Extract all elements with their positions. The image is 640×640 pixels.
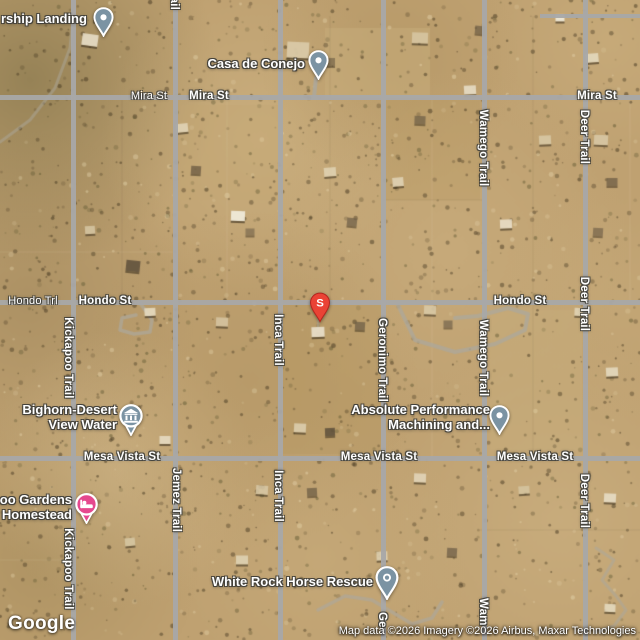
poi-label-white-rock-horse-rescue[interactable]: White Rock Horse Rescue [212, 575, 373, 590]
lodging-pin-icon[interactable] [74, 492, 99, 524]
poi-label-gardens-homestead[interactable]: oo Gardens Homestead [0, 493, 72, 522]
map-attribution[interactable]: Map data ©2026 Imagery ©2026 Airbus, Max… [339, 625, 636, 637]
poi-pin-icon[interactable] [489, 405, 510, 435]
poi-label-line: View Water [22, 418, 117, 433]
street-label-deer-2: Deer Trail [578, 277, 590, 331]
street-label-mira-1: Mira St [131, 90, 167, 102]
poi-pin-icon[interactable] [308, 50, 329, 80]
street-label-inca-2: Inca Trail [272, 470, 284, 522]
street-label-mesa-vista-3: Mesa Vista St [497, 451, 574, 463]
street-label-mira-2: Mira St [189, 90, 229, 102]
street-label-mira-3: Mira St [577, 90, 617, 102]
street-label-inca-1: Inca Trail [272, 314, 284, 366]
street-label-wamego-1: Wamego Trail [477, 110, 489, 187]
street-label-kickapoo-1: Kickapoo Trail [62, 317, 74, 398]
street-label-hondo-trl: Hondo Trl [8, 295, 58, 307]
street-label-deer-1: Deer Trail [578, 110, 590, 164]
street-label-mesa-vista-1: Mesa Vista St [84, 451, 161, 463]
poi-pin-icon[interactable] [93, 7, 114, 37]
poi-label-line: Machining and... [351, 418, 490, 433]
street-label-geronimo-1: Geronimo Trail [376, 318, 388, 402]
poi-label-line: oo Gardens [0, 493, 72, 508]
map-canvas[interactable]: z Trail Mira St Mira St Mira St Wamego T… [0, 0, 640, 640]
street-label-hondo-st-1: Hondo St [79, 295, 132, 307]
museum-pin-icon[interactable] [118, 403, 144, 436]
street-label-deer-3: Deer Trail [578, 474, 590, 528]
poi-label-bighorn-desert-view-water[interactable]: Bighorn-Desert View Water [22, 403, 117, 432]
street-label-wamego-fragment: Wam [477, 598, 489, 626]
poi-label-casa-de-conejo[interactable]: Casa de Conejo [207, 57, 305, 72]
road-mira-st [0, 95, 640, 100]
street-label-jemez-1: Jemez Trail [170, 468, 182, 532]
poi-pin-icon[interactable] [375, 566, 399, 600]
street-label-mesa-vista-2: Mesa Vista St [341, 451, 418, 463]
search-marker-pin[interactable]: S [309, 292, 331, 323]
street-label-hondo-st-2: Hondo St [494, 295, 547, 307]
poi-label-line: Absolute Performance [351, 403, 490, 418]
google-logo[interactable]: Google [8, 613, 75, 635]
street-label-jemez-fragment: z Trail [168, 0, 180, 10]
poi-label-line: Bighorn-Desert [22, 403, 117, 418]
street-label-kickapoo-2: Kickapoo Trail [62, 528, 74, 609]
street-label-wamego-2: Wamego Trail [477, 320, 489, 397]
road-segment-top-right [540, 14, 640, 19]
poi-label-absolute-performance[interactable]: Absolute Performance Machining and... [351, 403, 490, 432]
poi-label-rship-landing[interactable]: rship Landing [1, 12, 87, 27]
search-marker-letter: S [316, 297, 324, 309]
poi-label-line: Homestead [0, 508, 72, 523]
